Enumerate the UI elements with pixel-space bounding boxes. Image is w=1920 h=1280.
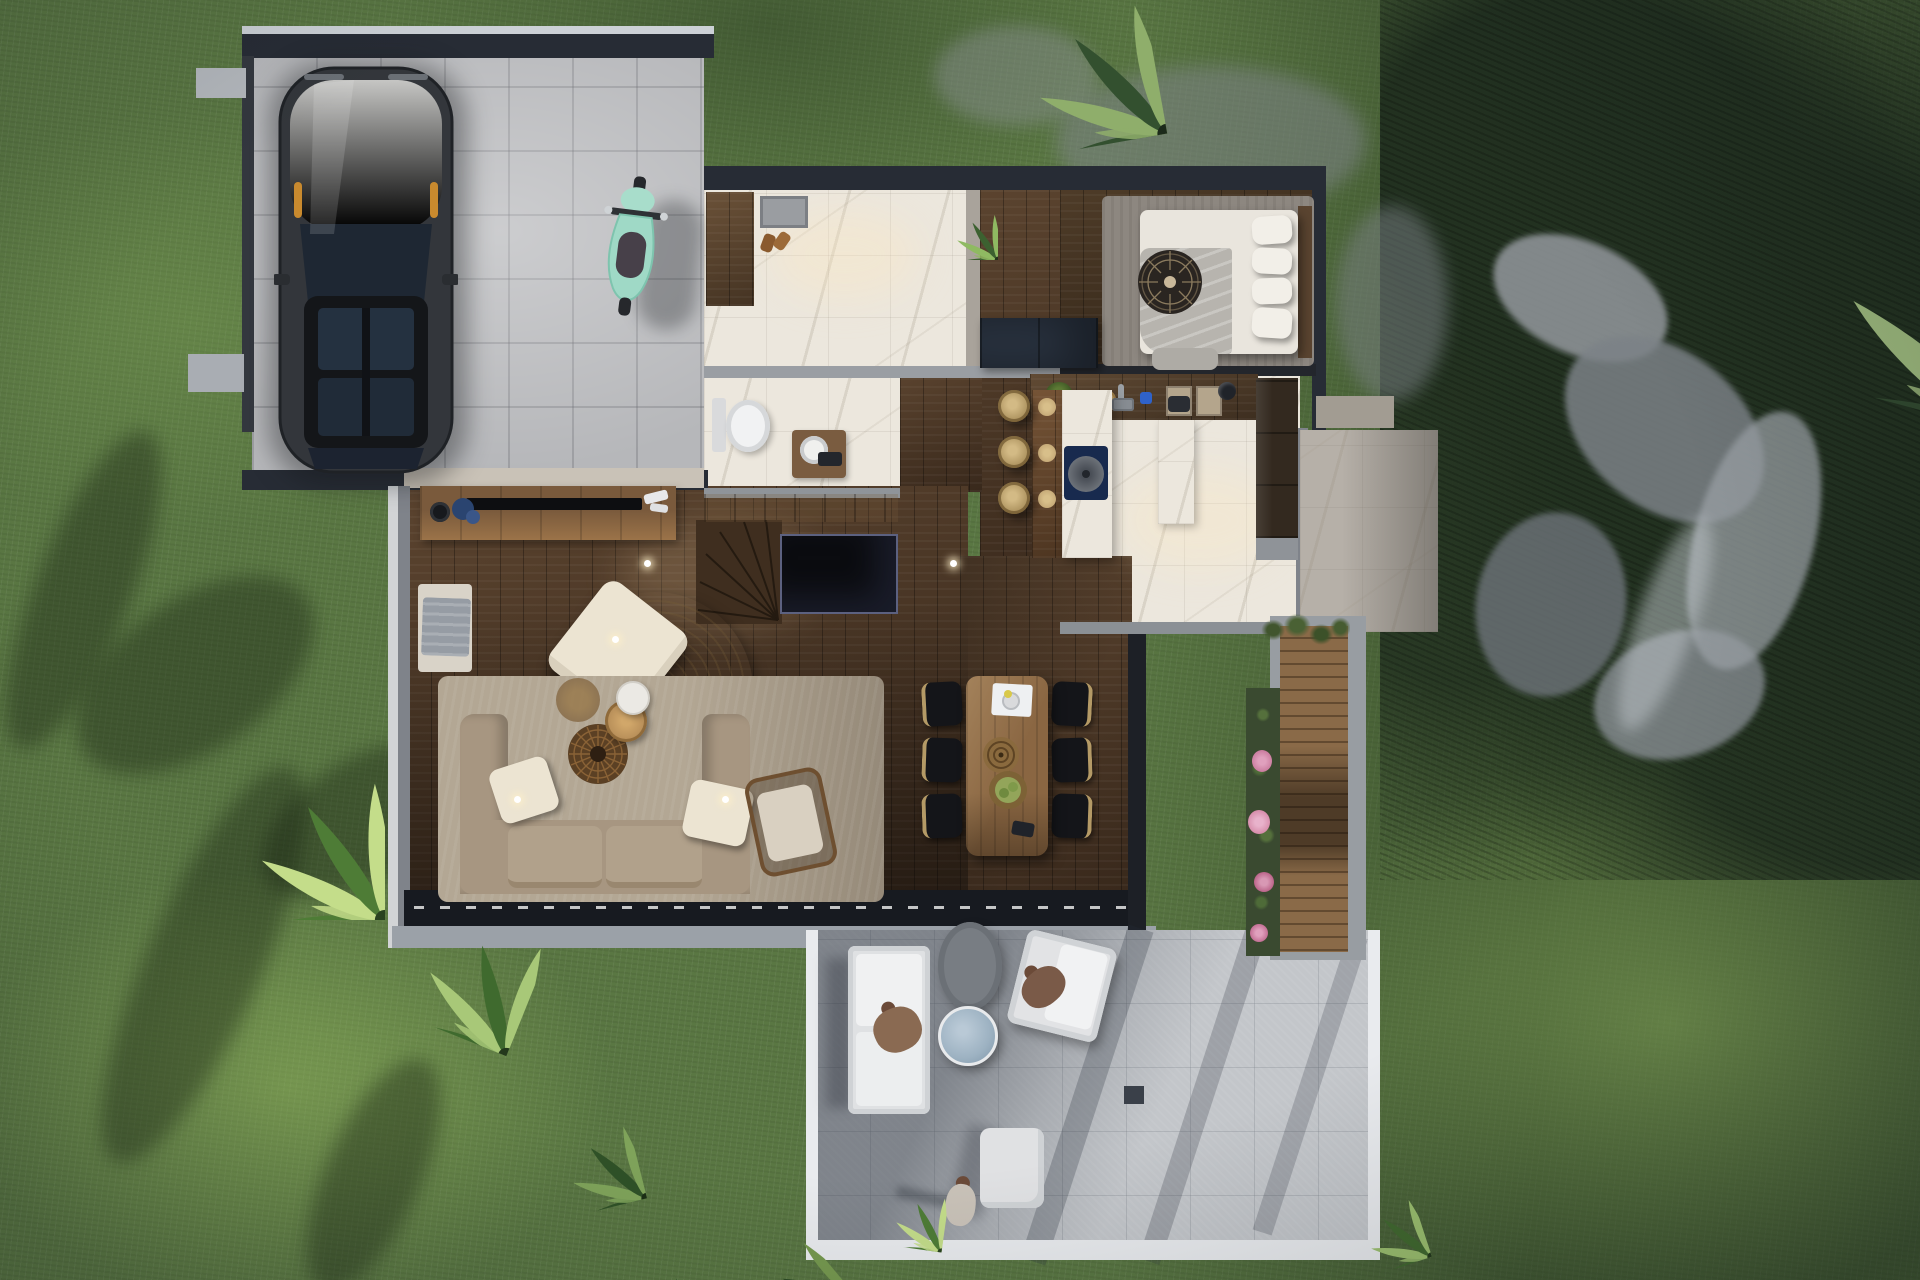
stairwell-void [780,534,898,614]
island-mat [1038,444,1056,462]
garage-north-wall [242,34,714,58]
flower-cluster [1250,924,1268,942]
bar-stool [998,390,1030,422]
wall-stub [188,354,244,392]
sink [1112,398,1134,411]
floor-spotlight [644,560,651,567]
rattan-mat [556,678,600,722]
rattan-pendant: Rattan pendant / centerpiece [982,736,1020,774]
toilet [726,400,770,452]
oval-outdoor-seat [938,922,1002,1010]
outdoor-pouf [980,1128,1044,1208]
dining-chair [921,793,963,838]
wall-stub [196,68,246,98]
pergola-post [1124,1086,1144,1104]
floor-plan-render: Parked car Mint scooter Potted plant [0,0,1920,1280]
car: Parked car [274,64,458,480]
decor-tray [430,502,450,522]
lemon [1004,690,1012,698]
bed-headboard [1298,206,1312,358]
bar-stool [998,482,1030,514]
sofa-button [722,796,729,803]
rattan-centerpiece: Rattan pendant / centerpiece [988,770,1028,810]
entry-step [1316,396,1394,428]
dining-chair [1051,681,1093,727]
decor-dish [466,510,480,524]
bed-pillow [1251,307,1293,340]
flower-cluster [1252,750,1272,772]
east-window-band [1128,634,1146,930]
kettle [1218,382,1236,400]
house-north-wall [704,166,1324,190]
palm-tree [828,1123,958,1253]
cabinet-end [1256,538,1298,560]
dining-chair [1051,793,1093,838]
flower-cluster [1254,872,1274,892]
armchair-button [612,636,619,643]
bar-stool [998,436,1030,468]
tall-cabinets [1256,378,1298,538]
toilet-tank [712,398,726,452]
dining-chair [921,681,963,727]
island-mat [1038,490,1056,508]
stair-upper-treads [704,494,898,522]
rock-patch [1336,206,1448,401]
entry-plant: Potted plant [902,164,998,260]
stair-hall-floor [900,372,982,492]
vanity-tray [818,452,842,466]
dining-chair [921,737,963,782]
bed-pillow [1251,215,1293,246]
bedroom-closet [980,318,1098,368]
dining-chair [1051,737,1093,782]
outdoor-table [938,1006,998,1066]
ceiling-fan: Rattan ceiling fan over bed [1136,248,1204,316]
blue-utensil [1140,392,1152,404]
white-side-table [616,681,650,715]
island-mat [1038,398,1056,416]
grass-planter [1254,608,1350,652]
shoe-bench [760,196,808,228]
tv [466,498,642,510]
side-terrace-shade [1300,430,1438,632]
flower-cluster [1248,810,1270,834]
bed-pillow [1252,277,1293,304]
small-appliance [1168,396,1190,412]
kitchen-peninsula [1158,420,1194,524]
floor-spotlight [950,560,957,567]
duvet-drape [1152,348,1218,370]
basin-drain [1082,470,1090,478]
terrace-curb [806,930,818,1260]
bed-pillow [1251,247,1292,275]
deck-shadow [1280,746,1348,876]
garage-parapet [242,26,714,34]
hall-wardrobe [706,192,754,306]
